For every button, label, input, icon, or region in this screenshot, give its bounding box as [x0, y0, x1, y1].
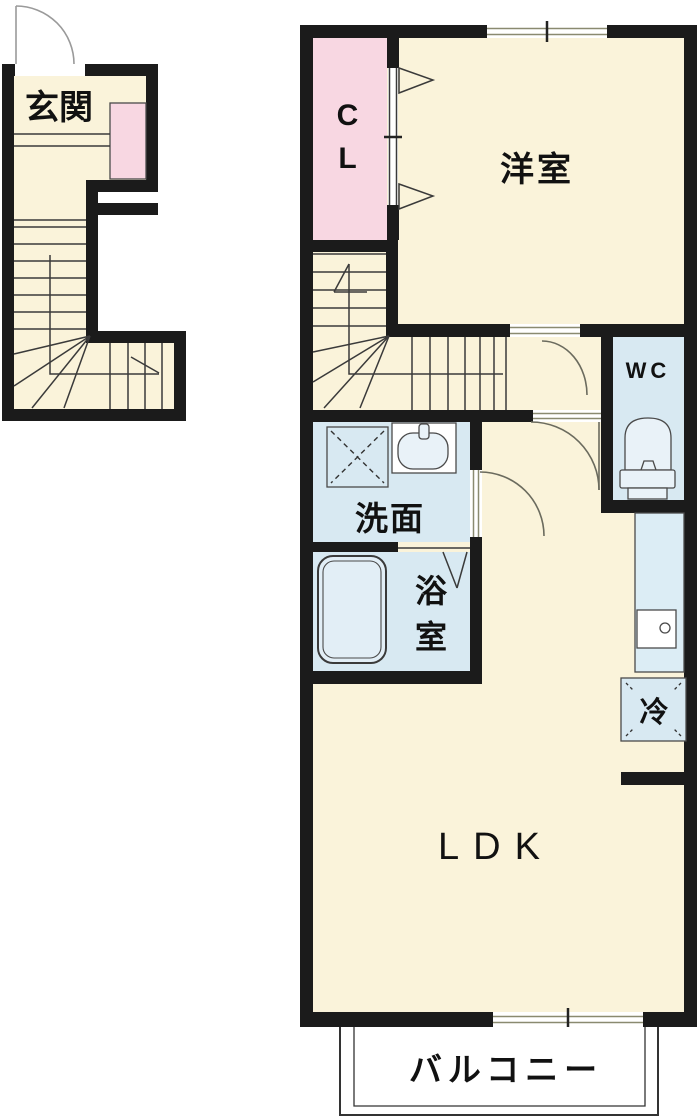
label-toilet: WC	[610, 357, 686, 385]
floorplan: 玄関 CL 洋室 WC 洗面 浴室 冷 LDK バルコニー	[0, 0, 700, 1120]
label-entrance: 玄関	[20, 85, 98, 123]
entrance-building	[2, 6, 186, 421]
sink-icon	[392, 423, 456, 473]
kitchen-counter	[635, 513, 684, 672]
label-washroom: 洗面	[330, 496, 450, 536]
label-ldk: LDK	[386, 824, 606, 870]
label-refrigerator: 冷	[632, 693, 676, 727]
label-bathroom: 浴室	[407, 570, 451, 670]
bathtub-icon	[318, 556, 386, 663]
shoe-cabinet	[110, 103, 146, 179]
label-western-room: 洋室	[462, 146, 612, 186]
washing-machine-icon	[327, 427, 388, 487]
label-balcony: バルコニー	[356, 1046, 656, 1088]
toilet-icon	[620, 418, 675, 499]
entrance-door-arc	[16, 6, 74, 64]
label-closet: CL	[329, 100, 365, 184]
kitchen-sink-icon	[637, 610, 676, 648]
